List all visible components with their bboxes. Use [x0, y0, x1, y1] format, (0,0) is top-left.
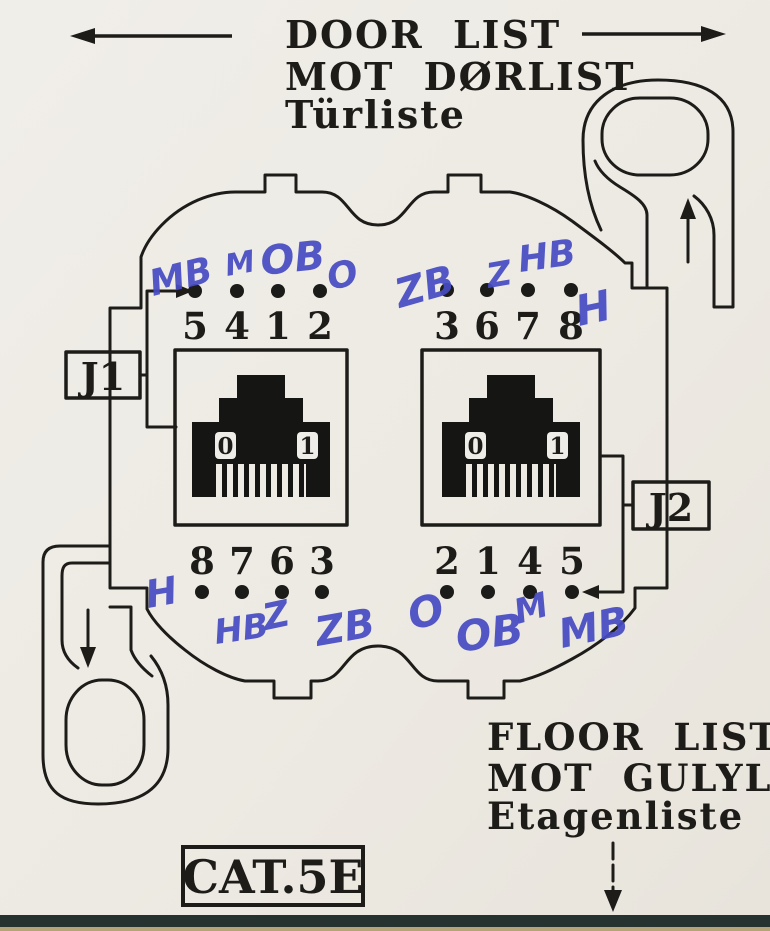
j1-label: J1: [78, 354, 125, 399]
pin-number: 1: [265, 304, 291, 348]
j2-label: J2: [646, 485, 693, 530]
pin-number: 4: [224, 304, 250, 348]
pin-number: 4: [517, 539, 543, 583]
pin-dot: [315, 585, 329, 599]
cat5e-badge: CAT.5E: [182, 847, 363, 905]
wiring-diagram-canvas: 0 1 DOOR LIST MOT DØRLIST Türliste: [0, 0, 770, 931]
floor-list-line3: Etagenliste: [487, 794, 744, 838]
pin-number: 5: [182, 304, 208, 348]
wire-label: HB: [516, 232, 579, 281]
door-list-line3: Türliste: [285, 92, 466, 137]
pin-number: 1: [475, 539, 501, 583]
door-list-line1: DOOR LIST: [285, 12, 561, 57]
wire-label: OB: [258, 232, 327, 284]
pin-number: 2: [434, 539, 460, 583]
pin-dot: [481, 585, 495, 599]
pin-dot: [271, 284, 285, 298]
cat5e-label: CAT.5E: [182, 850, 363, 904]
pin-number: 6: [269, 539, 295, 583]
wire-label: M: [222, 244, 258, 284]
pin-dot: [440, 585, 454, 599]
pin-dot: [565, 585, 579, 599]
floor-list-line1: FLOOR LIST: [487, 715, 770, 759]
pin-number: 6: [474, 304, 500, 348]
pin-number: 7: [229, 539, 255, 583]
pin-number: 7: [515, 304, 541, 348]
pin-dot: [313, 284, 327, 298]
pin-number: 3: [309, 539, 335, 583]
floor-list-title-block: FLOOR LIST MOT GULYLIST Etagenliste: [487, 715, 770, 838]
pin-dot: [521, 283, 535, 297]
pin-number: 5: [559, 539, 585, 583]
pin-dot: [195, 585, 209, 599]
pin-number: 8: [189, 539, 215, 583]
pin-dot: [235, 585, 249, 599]
pin-number: 2: [307, 304, 333, 348]
pin-dot: [230, 284, 244, 298]
scanned-diagram-page: 0 1 DOOR LIST MOT DØRLIST Türliste: [0, 0, 770, 931]
pin-number: 3: [434, 304, 460, 348]
scan-edge-tan-line: [0, 927, 770, 931]
